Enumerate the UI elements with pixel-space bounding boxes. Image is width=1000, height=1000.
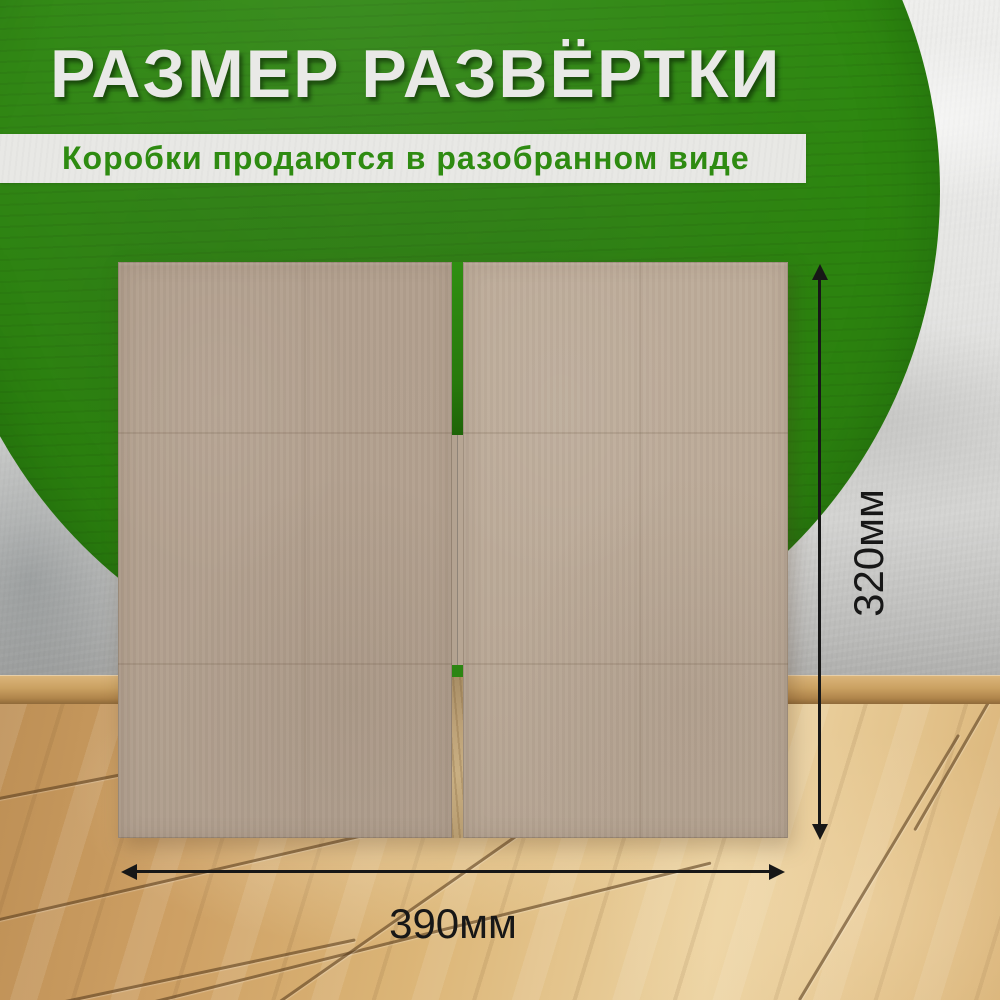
cardboard-texture (118, 262, 452, 838)
arrowhead-right-icon (769, 864, 785, 880)
subtitle-strip: Коробки продаются в разобранном виде (0, 134, 806, 183)
arrowhead-down-icon (812, 824, 828, 840)
box-center-slot (452, 262, 463, 838)
dimension-line-horizontal (135, 870, 771, 873)
box-panel-right (463, 262, 788, 838)
height-dimension-label: 320мм (848, 489, 890, 617)
box-fold-crease-horizontal (463, 663, 788, 665)
box-fold-crease-horizontal (118, 432, 452, 434)
slot-gap-floor-bottom (452, 677, 463, 838)
box-panel-left (118, 262, 452, 838)
box-fold-crease-vertical (304, 262, 306, 838)
floor-plank-seam (0, 938, 356, 1000)
cardboard-box (118, 262, 788, 838)
slot-gap-green-notch (452, 665, 463, 677)
slot-gap-green-top (452, 262, 463, 435)
floor-plank-seam (798, 734, 960, 1000)
scene: РАЗМЕР РАЗВЁРТКИ Коробки продаются в раз… (0, 0, 1000, 1000)
dimension-line-vertical (818, 278, 821, 826)
subtitle-text: Коробки продаются в разобранном виде (0, 134, 806, 183)
box-fold-crease-horizontal (118, 663, 452, 665)
box-fold-crease-vertical (639, 262, 641, 838)
box-fold-crease-horizontal (463, 432, 788, 434)
floor-plank-seam (913, 704, 991, 831)
slot-crease-line (452, 435, 463, 665)
width-dimension-label: 390мм (389, 903, 517, 945)
page-title: РАЗМЕР РАЗВЁРТКИ (50, 40, 781, 108)
cardboard-texture (463, 262, 788, 838)
